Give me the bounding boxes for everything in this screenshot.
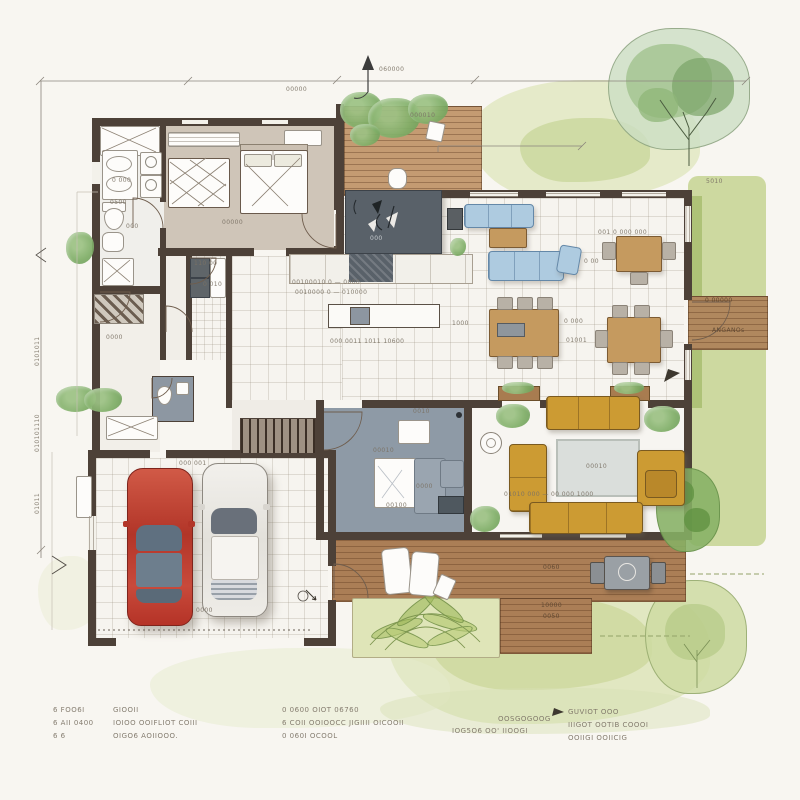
car-mirror — [263, 504, 270, 510]
dimension-arrow — [36, 248, 46, 262]
wall — [304, 638, 336, 646]
table-tray — [497, 323, 525, 337]
dining-note: 0 000 — [564, 318, 583, 326]
chair — [630, 272, 648, 285]
sofa-mustard-top — [546, 396, 640, 430]
legend-item: GIOOII — [113, 706, 139, 715]
wall — [92, 286, 164, 294]
shower — [102, 258, 134, 286]
tree-foliage-spot — [638, 88, 678, 122]
legend-item: GUVIOT OOO — [568, 708, 619, 717]
living-note: 01010 000 — 00 000 1000 — [504, 491, 594, 499]
chair — [660, 330, 673, 348]
wall — [336, 192, 344, 256]
office-note: 0010 — [413, 408, 430, 416]
chair — [517, 297, 533, 310]
legend-item: 6 FOO6I — [53, 706, 85, 715]
legend-item: 0 060I OCOOL — [282, 732, 338, 741]
breakfast-table — [616, 236, 662, 272]
car-mirror — [188, 521, 195, 527]
island-note: 000 0011 1011 10600 — [330, 338, 404, 346]
office-daybed — [374, 458, 416, 508]
outdoor-bowl — [618, 563, 636, 581]
legend-item: IIIGOT OOTIB COOOI — [568, 721, 649, 730]
dining-note: 001 0 000 000 — [598, 229, 647, 237]
sofa-blue-main — [488, 251, 564, 281]
armchair-cushion — [645, 470, 677, 498]
chair — [537, 356, 553, 369]
wall — [316, 532, 472, 540]
legend-item: 6 6 — [53, 732, 66, 741]
window — [182, 120, 208, 124]
dining-table-square — [607, 317, 661, 363]
car-rear-glass — [211, 580, 257, 600]
shrub-left — [66, 232, 94, 264]
kitchen-island — [328, 304, 440, 328]
porch-note: ANGANOs — [712, 327, 744, 335]
deck-note: 10000 — [541, 602, 562, 610]
dim-note: 00000 — [286, 86, 307, 94]
car-roof-glass — [136, 553, 182, 587]
chair — [602, 242, 616, 260]
porch-note: 0 00000 — [705, 297, 733, 305]
dim-note-left: 010101110 — [34, 414, 42, 452]
wall — [88, 450, 150, 458]
chair — [662, 242, 676, 260]
dining-note: 1000 — [452, 320, 469, 328]
chair — [517, 356, 533, 369]
window — [580, 534, 626, 538]
dresser — [168, 132, 240, 147]
corridor-floor — [166, 256, 186, 360]
chair — [612, 305, 628, 318]
chair — [634, 362, 650, 375]
rug-note: 00010 — [586, 463, 607, 471]
sink-basin — [106, 156, 132, 172]
chair — [537, 297, 553, 310]
deck-note: 0060 — [543, 564, 560, 572]
slab-note: 000 — [370, 235, 383, 243]
exterior-utility-sink — [76, 476, 92, 518]
office-note: 00100 — [386, 502, 407, 510]
dim-note-left: 01011 — [34, 493, 42, 514]
legend-item: 6 COII OOIOOCC JIGIIII OICOOII — [282, 719, 404, 728]
dim-note-left: 0101011 — [34, 336, 42, 366]
deck-note: 0050 — [543, 613, 560, 621]
legend-item: 0 0600 OIOT 06760 — [282, 706, 359, 715]
agave-plant — [362, 596, 492, 658]
side-table — [447, 208, 463, 230]
legend-item: IOG5O6 OO' IIOOGI — [452, 727, 528, 736]
outdoor-chair — [590, 562, 605, 584]
car-windshield — [211, 508, 257, 534]
garage-note: 000 001 — [179, 460, 207, 468]
room-label-bedroom: 00000 — [222, 219, 243, 227]
car-rear-glass — [136, 589, 182, 603]
utility-note: 110 00 — [194, 260, 217, 268]
coffee-table — [489, 228, 527, 248]
window — [685, 350, 691, 380]
garage-note: 0000 — [196, 607, 213, 615]
dining-note: 01001 — [566, 337, 587, 345]
bush-spot — [684, 508, 710, 532]
kitchen-note: 00100010 0 — 0000 — [292, 279, 360, 287]
chair — [612, 362, 628, 375]
sofa-blue-top — [464, 204, 534, 228]
legend-item: 6 AII 0400 — [53, 719, 94, 728]
dimension-tick — [37, 546, 45, 554]
car-roof — [211, 536, 259, 580]
patio-pot — [388, 168, 407, 189]
car-white — [202, 463, 268, 617]
office-ottoman — [398, 420, 430, 444]
wall — [328, 450, 336, 566]
pillow — [244, 154, 272, 167]
wall — [160, 256, 166, 360]
north-note: 060000 — [379, 66, 404, 74]
wall — [472, 400, 502, 408]
wall — [316, 400, 324, 540]
pillow — [274, 154, 302, 167]
office-note: 00010 — [373, 447, 394, 455]
chair — [595, 330, 608, 348]
chair — [497, 356, 513, 369]
tree-foliage-dark — [672, 58, 734, 116]
chair — [497, 297, 513, 310]
window — [262, 120, 288, 124]
lawn-note: 5010 — [706, 178, 723, 186]
legend-item: OOIIGI OOIICIG — [568, 734, 627, 743]
staircase — [240, 418, 316, 454]
wall — [362, 400, 472, 408]
window — [500, 534, 542, 538]
tree-top-right — [608, 18, 752, 164]
legend-item: OIGO6 AOIIOOO. — [113, 732, 178, 741]
sofa-note: 0 00 — [584, 258, 599, 266]
chair — [634, 305, 650, 318]
wall-spot — [456, 412, 462, 418]
mud-bench — [106, 416, 158, 440]
dryer-drum — [145, 179, 157, 191]
wall — [92, 118, 100, 294]
island-sink — [350, 307, 370, 325]
car-red — [127, 468, 193, 626]
office-cabinet — [438, 496, 464, 514]
window — [622, 192, 666, 196]
tree-foliage-mid — [665, 604, 725, 660]
wall — [92, 118, 342, 126]
powder-sink — [176, 382, 189, 395]
office-seat — [440, 460, 464, 488]
wall — [226, 256, 232, 408]
washer-drum — [145, 156, 157, 168]
bath-note: 0 000 — [112, 177, 131, 185]
window — [546, 192, 600, 196]
car-mirror — [198, 504, 205, 510]
wall — [88, 638, 116, 646]
kitchen-cooktop — [349, 254, 393, 282]
utility-note: 0 010 — [203, 281, 222, 289]
window — [470, 192, 518, 196]
kitchen-note: 0010000 0 — 010000 — [295, 289, 367, 297]
hall-note: 0000 — [106, 334, 123, 342]
legend-item: OOSGOGOOG — [498, 715, 551, 724]
sofa-mustard-bottom — [529, 502, 643, 534]
kitchen-slab — [345, 190, 442, 254]
office-note: 0000 — [416, 483, 433, 491]
legend-item: IOIOO OOIFLIOT COIII — [113, 719, 198, 728]
deck-dim-note: 000010 — [410, 112, 435, 120]
entry-steps — [94, 294, 144, 324]
bed-single — [168, 158, 230, 208]
window — [88, 516, 96, 550]
bath-sink — [102, 232, 124, 252]
car-windshield — [136, 525, 182, 551]
round-side-table-inner — [486, 438, 496, 448]
outdoor-chair — [651, 562, 666, 584]
bath-note: 000 — [126, 223, 139, 231]
wall — [158, 248, 254, 256]
window — [92, 162, 100, 184]
car-mirror — [123, 521, 130, 527]
window — [685, 206, 691, 242]
bath-note: 0500 — [110, 199, 127, 207]
floor-plan-canvas: 00000 060000 0101011 010101110 01011 000… — [0, 0, 800, 800]
wall — [160, 228, 166, 256]
